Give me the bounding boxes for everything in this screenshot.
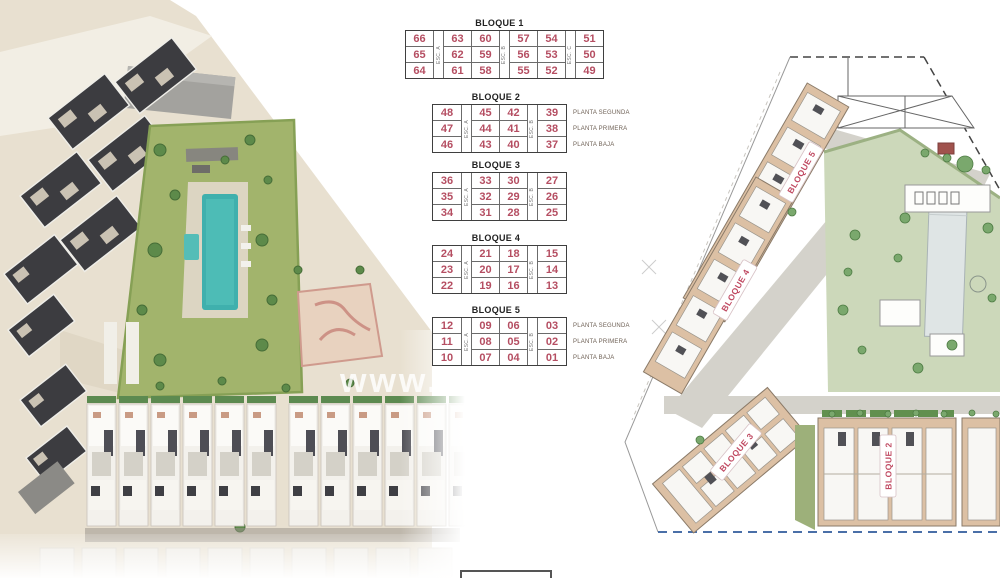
masterplan-image: BLOQUE 5 BLOQUE 4 BLOQUE 3 BLOQUE 2 BLOQ… [0, 0, 1000, 578]
unit-number-cell[interactable]: 37 [538, 137, 566, 152]
bloque-table: BLOQUE 424ESC. A2118ESC. B15232017142219… [432, 233, 567, 294]
unit-number-cell[interactable]: 53 [538, 47, 565, 62]
bloque-table: BLOQUE 248ESC. A4542ESC. B39474441384643… [432, 92, 567, 153]
floor-level-label: PLANTA PRIMERA [573, 334, 630, 350]
unit-number-cell[interactable]: 32 [472, 189, 499, 204]
unit-number-cell[interactable]: 02 [538, 334, 566, 349]
unit-number-cell[interactable]: 19 [472, 278, 499, 293]
unit-number-cell[interactable]: 23 [433, 262, 461, 277]
unit-number-cell[interactable]: 36 [433, 173, 461, 188]
unit-number-cell[interactable]: 38 [538, 121, 566, 136]
unit-number-cell[interactable]: 52 [538, 63, 565, 78]
unit-number-cell[interactable]: 26 [538, 189, 566, 204]
bloque-table: BLOQUE 166ESC. A6360ESC. B5754ESC. C5165… [405, 18, 604, 79]
floor-level-label: PLANTA SEGUNDA [573, 105, 630, 121]
unit-number-cell[interactable]: 40 [500, 137, 527, 152]
unit-number-cell[interactable]: 04 [500, 350, 527, 365]
unit-number-cell[interactable]: 51 [576, 31, 603, 46]
unit-number-cell[interactable]: 62 [444, 47, 471, 62]
unit-number-cell[interactable]: 65 [406, 47, 433, 62]
unit-number-cell[interactable]: 56 [510, 47, 537, 62]
unit-number-cell[interactable]: 35 [433, 189, 461, 204]
unit-number-cell[interactable]: 64 [406, 63, 433, 78]
stair-column-label: ESC. B [528, 318, 537, 365]
bloque-table-title: BLOQUE 1 [405, 18, 594, 28]
unit-number-cell[interactable]: 44 [472, 121, 499, 136]
unit-number-cell[interactable]: 12 [433, 318, 461, 333]
unit-number-cell[interactable]: 55 [510, 63, 537, 78]
unit-number-cell[interactable]: 22 [433, 278, 461, 293]
unit-number-cell[interactable]: 49 [576, 63, 603, 78]
stair-column-label: ESC. B [528, 105, 537, 152]
floor-level-label: PLANTA PRIMERA [573, 121, 630, 137]
unit-number-cell[interactable]: 08 [472, 334, 499, 349]
unit-number-cell[interactable]: 20 [472, 262, 499, 277]
unit-number-cell[interactable]: 54 [538, 31, 565, 46]
unit-number-cell[interactable]: 58 [472, 63, 499, 78]
unit-number-cell[interactable]: 03 [538, 318, 566, 333]
unit-number-cell[interactable]: 42 [500, 105, 527, 120]
stair-column-label: ESC. B [528, 173, 537, 220]
unit-number-cell[interactable]: 33 [472, 173, 499, 188]
unit-number-cell[interactable]: 39 [538, 105, 566, 120]
bloque-table-title: BLOQUE 3 [432, 160, 560, 170]
bloque-table: BLOQUE 336ESC. A3330ESC. B27353229263431… [432, 160, 567, 221]
bloque-table-title: BLOQUE 5 [432, 305, 560, 315]
unit-number-cell[interactable]: 30 [500, 173, 527, 188]
unit-number-cell[interactable]: 48 [433, 105, 461, 120]
stair-column-label: ESC. A [462, 318, 471, 365]
bloque-table-title: BLOQUE 4 [432, 233, 560, 243]
unit-number-cell[interactable]: 21 [472, 246, 499, 261]
bloque-table-title: BLOQUE 2 [432, 92, 560, 102]
unit-number-cell[interactable]: 46 [433, 137, 461, 152]
unit-number-cell[interactable]: 45 [472, 105, 499, 120]
unit-number-cell[interactable]: 28 [500, 205, 527, 220]
floor-level-label: PLANTA BAJA [573, 137, 630, 153]
partial-table-outline [460, 570, 552, 578]
unit-number-cell[interactable]: 15 [538, 246, 566, 261]
unit-number-cell[interactable]: 34 [433, 205, 461, 220]
unit-tables-panel: BLOQUE 166ESC. A6360ESC. B5754ESC. C5165… [0, 0, 1000, 578]
unit-number-cell[interactable]: 66 [406, 31, 433, 46]
unit-number-cell[interactable]: 18 [500, 246, 527, 261]
unit-number-cell[interactable]: 01 [538, 350, 566, 365]
floor-level-label: PLANTA BAJA [573, 350, 630, 366]
unit-number-cell[interactable]: 60 [472, 31, 499, 46]
stair-column-label: ESC. C [566, 31, 575, 78]
stair-column-label: ESC. A [434, 31, 443, 78]
unit-number-cell[interactable]: 09 [472, 318, 499, 333]
unit-number-cell[interactable]: 57 [510, 31, 537, 46]
unit-number-cell[interactable]: 06 [500, 318, 527, 333]
unit-number-cell[interactable]: 25 [538, 205, 566, 220]
stair-column-label: ESC. A [462, 246, 471, 293]
unit-number-cell[interactable]: 14 [538, 262, 566, 277]
floor-level-label: PLANTA SEGUNDA [573, 318, 630, 334]
unit-number-cell[interactable]: 43 [472, 137, 499, 152]
unit-number-cell[interactable]: 11 [433, 334, 461, 349]
unit-number-cell[interactable]: 27 [538, 173, 566, 188]
unit-number-cell[interactable]: 16 [500, 278, 527, 293]
unit-number-cell[interactable]: 05 [500, 334, 527, 349]
unit-number-cell[interactable]: 13 [538, 278, 566, 293]
unit-number-cell[interactable]: 59 [472, 47, 499, 62]
stair-column-label: ESC. B [500, 31, 509, 78]
unit-number-cell[interactable]: 10 [433, 350, 461, 365]
stair-column-label: ESC. A [462, 173, 471, 220]
unit-number-cell[interactable]: 63 [444, 31, 471, 46]
unit-number-cell[interactable]: 41 [500, 121, 527, 136]
bloque-table: BLOQUE 512ESC. A0906ESC. B03110805021007… [432, 305, 567, 366]
unit-number-cell[interactable]: 07 [472, 350, 499, 365]
stair-column-label: ESC. A [462, 105, 471, 152]
unit-number-cell[interactable]: 50 [576, 47, 603, 62]
unit-number-cell[interactable]: 61 [444, 63, 471, 78]
stair-column-label: ESC. B [528, 246, 537, 293]
unit-number-cell[interactable]: 29 [500, 189, 527, 204]
unit-number-cell[interactable]: 17 [500, 262, 527, 277]
unit-number-cell[interactable]: 24 [433, 246, 461, 261]
unit-number-cell[interactable]: 31 [472, 205, 499, 220]
unit-number-cell[interactable]: 47 [433, 121, 461, 136]
